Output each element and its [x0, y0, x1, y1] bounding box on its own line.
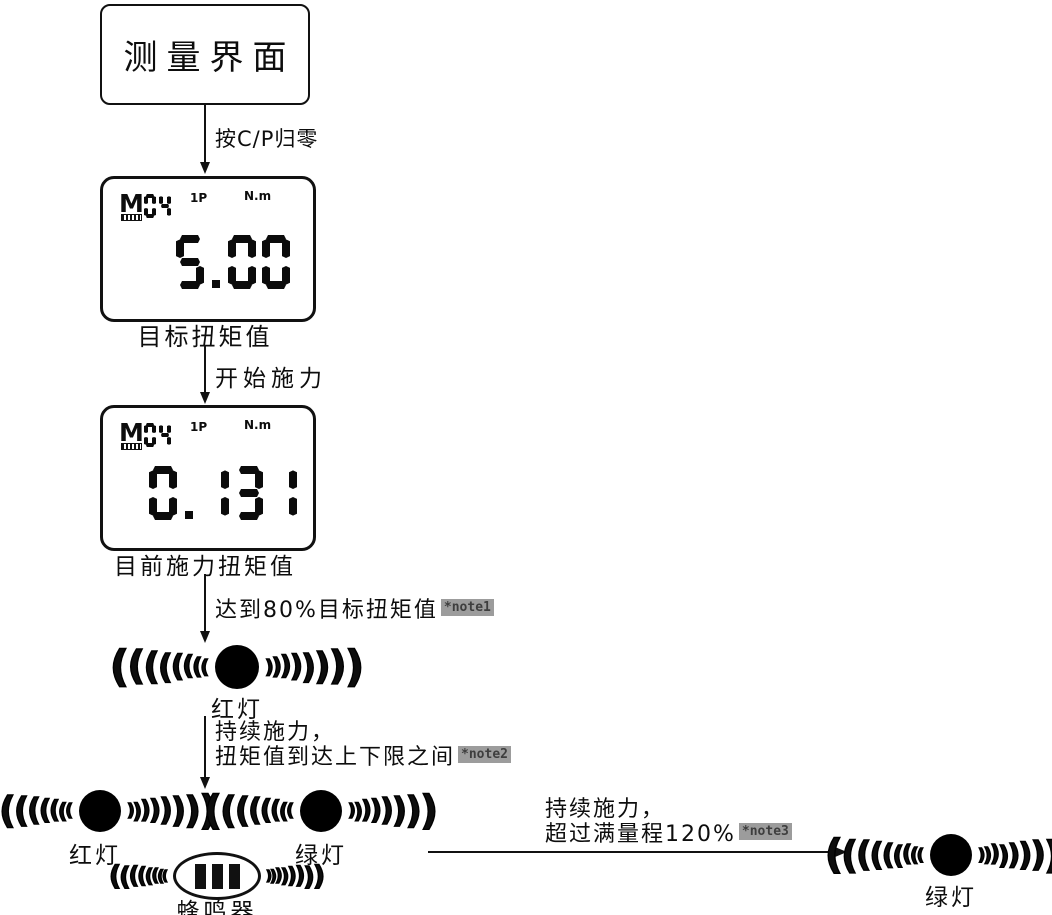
caption-buzzer: 蜂鸣器: [108, 892, 326, 915]
lcd-mode-icon: M: [119, 193, 144, 221]
sound-waves-right-icon: ))))))))): [979, 835, 1052, 875]
lcd-display-target-torque: M 1P N.m: [100, 176, 316, 322]
note1-badge: *note1: [441, 599, 494, 616]
sound-waves-left-icon: ((((((((: [0, 791, 72, 831]
lcd-unit-label: N.m: [244, 418, 271, 432]
buzzer-bar: [195, 864, 206, 889]
lcd-mode-letter: M: [119, 422, 144, 443]
transition-label-start-force: 开始施力: [215, 359, 327, 393]
start-node-label: 测量界面: [115, 30, 296, 79]
lcd-mode-letter: M: [119, 193, 144, 214]
start-node-measure-screen: 测量界面: [100, 4, 310, 105]
sound-waves-right-icon: )))))))): [267, 863, 324, 890]
arrow-right: [428, 851, 836, 853]
lcd-mode-icon: M: [119, 422, 144, 450]
lcd-indicator-1p: 1P: [190, 191, 207, 205]
buzzer-bar: [229, 864, 240, 889]
battery-icon: [121, 443, 142, 450]
sound-waves-left-icon: (((((((((: [826, 835, 923, 875]
lcd-display-current-torque: M 1P N.m: [100, 405, 316, 551]
arrowhead-icon: [200, 392, 210, 404]
arrow-down-1: [204, 104, 206, 163]
lcd-mode-number: [144, 194, 171, 218]
arrow-down-3: [204, 574, 206, 632]
sound-waves-left-icon: ((((((((: [205, 791, 293, 831]
note2-badge: *note2: [458, 746, 511, 763]
caption-green-light-2: 绿灯: [850, 878, 1052, 912]
sound-waves-right-icon: )))))))): [349, 791, 437, 831]
battery-icon: [121, 214, 142, 221]
arrow-down-4: [204, 716, 206, 778]
transition-label-within-limits: 扭矩值到达上下限之间: [215, 745, 455, 770]
green-lamp-icon: [300, 790, 342, 832]
arrowhead-icon: [200, 162, 210, 174]
arrowhead-icon: [200, 631, 210, 643]
transition-label-80-percent: 达到80%目标扭矩值: [215, 598, 438, 623]
transition-label-press-cp-zero: 按C/P归零: [215, 123, 318, 153]
sound-waves-left-icon: ((((((((: [111, 646, 208, 689]
green-light-indicator-2: ((((((((( ))))))))): [850, 832, 1052, 878]
note3-badge: *note3: [739, 823, 792, 840]
lcd-unit-label: N.m: [244, 189, 271, 203]
buzzer-bar: [212, 864, 223, 889]
flowchart-measurement-procedure: 测量界面 按C/P归零 M 1P N.m 目标扭矩值 开始施力 M 1P N.m…: [0, 0, 1052, 915]
arrow-down-2: [204, 345, 206, 393]
red-light-indicator-2: (((((((( )))))))): [0, 788, 200, 834]
sound-waves-left-icon: ((((((((: [110, 863, 167, 890]
red-lamp-icon: [215, 645, 259, 689]
green-light-indicator-1: (((((((( )))))))): [212, 788, 430, 834]
lcd-mode-number: [144, 423, 171, 447]
red-light-indicator-1: (((((((( )))))))): [103, 643, 371, 691]
green-lamp-icon: [930, 834, 972, 876]
red-lamp-icon: [79, 790, 121, 832]
lcd-value-current: [149, 466, 297, 520]
lcd-value-target: [176, 235, 290, 289]
transition-label-over-120: 超过满量程120%: [545, 822, 736, 847]
lcd-indicator-1p: 1P: [190, 420, 207, 434]
sound-waves-right-icon: )))))))): [266, 646, 363, 689]
